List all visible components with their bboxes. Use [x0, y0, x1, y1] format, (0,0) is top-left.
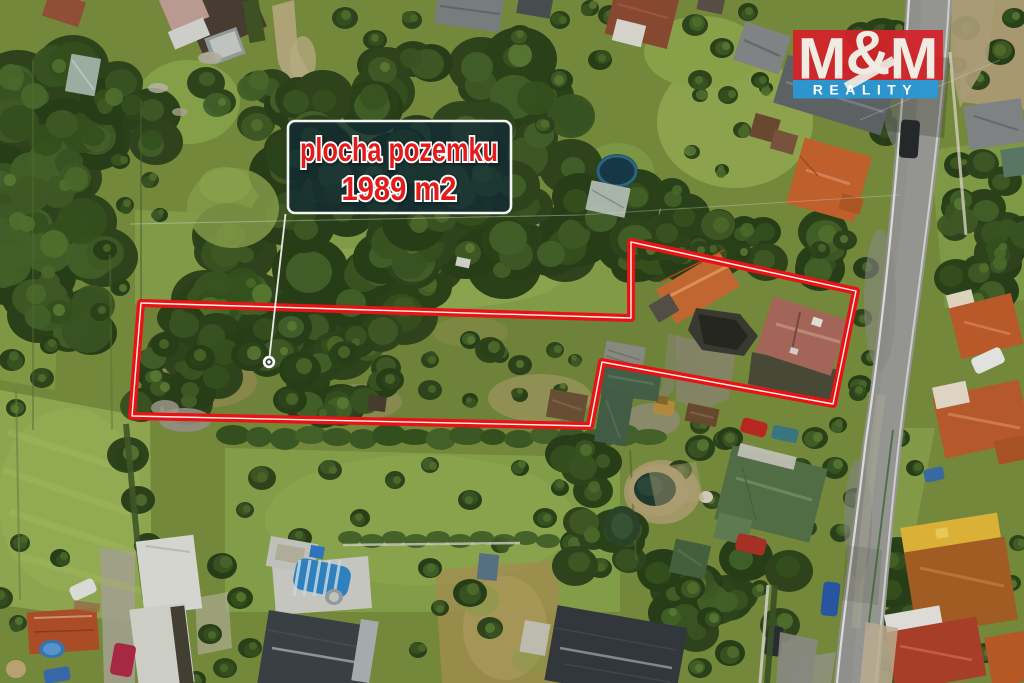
svg-text:REALITY: REALITY — [813, 82, 918, 98]
svg-text:1989 m2: 1989 m2 — [342, 170, 457, 207]
svg-text:&: & — [846, 19, 891, 88]
svg-text:plocha pozemku: plocha pozemku — [300, 131, 498, 168]
